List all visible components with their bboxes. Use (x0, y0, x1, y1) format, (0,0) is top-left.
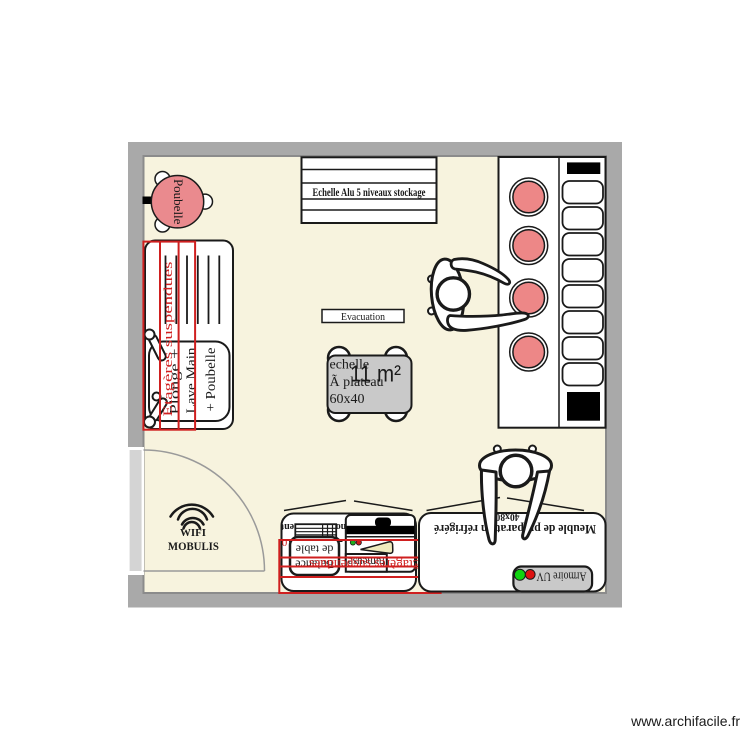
svg-text:+ Poubelle: + Poubelle (204, 348, 219, 412)
svg-text:40x80: 40x80 (495, 511, 519, 523)
svg-text:60x40: 60x40 (330, 392, 365, 407)
svg-text:Armoire UV: Armoire UV (537, 570, 587, 584)
svg-text:Etagères suspendues: Etagères suspendues (160, 262, 175, 417)
svg-text:Echelle Alu 5 niveaux stockage: Echelle Alu 5 niveaux stockage (313, 185, 426, 199)
svg-text:Lave Main: Lave Main (185, 348, 200, 414)
svg-text:ent: ent (280, 521, 294, 532)
svg-text:de table: de table (296, 543, 334, 557)
svg-text:Evacuation: Evacuation (341, 311, 385, 323)
svg-text:Meuble de préparation réfrigér: Meuble de préparation réfrigéré (434, 522, 596, 537)
svg-text:11 m²: 11 m² (350, 361, 401, 387)
svg-text:www.archifacile.fr: www.archifacile.fr (630, 713, 740, 729)
svg-text:WIFI: WIFI (180, 528, 206, 539)
svg-text:0: 0 (281, 536, 287, 548)
svg-text:MOBULIS: MOBULIS (168, 541, 219, 553)
svg-text:Etagères suspendues: Etagères suspendues (309, 557, 421, 572)
svg-text:Poubelle: Poubelle (171, 179, 186, 225)
svg-text:no: no (336, 521, 347, 532)
